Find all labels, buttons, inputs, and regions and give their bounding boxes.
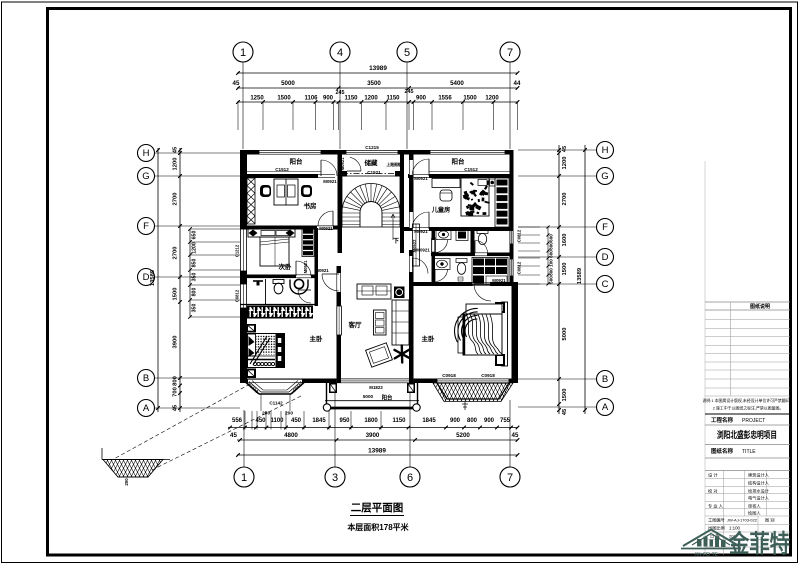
- svg-text:3900: 3900: [173, 336, 179, 349]
- svg-text:C0918: C0918: [442, 373, 456, 378]
- svg-text:5400: 5400: [450, 80, 464, 87]
- svg-text:45: 45: [173, 146, 179, 153]
- svg-text:6: 6: [407, 472, 413, 484]
- svg-text:45: 45: [512, 432, 519, 439]
- svg-text:图纸名称: 图纸名称: [711, 447, 734, 455]
- svg-text:说明:1 本图属设计版权,未经设计单位许可严禁翻印。: 说明:1 本图属设计版权,未经设计单位许可严禁翻印。: [703, 398, 794, 403]
- svg-text:C0918: C0918: [481, 373, 495, 378]
- svg-text:C1212: C1212: [235, 244, 240, 257]
- svg-text:1500: 1500: [277, 96, 291, 102]
- svg-text:C1142: C1142: [269, 401, 283, 406]
- svg-text:1250: 1250: [250, 96, 264, 102]
- svg-text:M1823: M1823: [369, 385, 383, 390]
- svg-text:900: 900: [323, 96, 334, 102]
- svg-text:阳台: 阳台: [452, 157, 466, 166]
- svg-text:D: D: [143, 272, 150, 283]
- svg-text:200: 200: [124, 478, 129, 486]
- svg-text:13589: 13589: [577, 267, 583, 284]
- svg-text:主卧: 主卧: [310, 334, 324, 343]
- svg-text:900: 900: [484, 418, 495, 424]
- svg-text:A: A: [143, 403, 150, 414]
- svg-text:1150: 1150: [392, 418, 406, 424]
- svg-text:5200: 5200: [456, 432, 470, 439]
- svg-text:44: 44: [514, 80, 521, 87]
- svg-text:绘图人: 绘图人: [748, 510, 761, 517]
- svg-text:800: 800: [549, 268, 554, 276]
- svg-text:13989: 13989: [368, 448, 386, 455]
- svg-text:C: C: [602, 279, 609, 290]
- svg-text:设 计: 设 计: [708, 472, 718, 479]
- svg-text:书房: 书房: [304, 201, 318, 210]
- svg-text:245: 245: [336, 90, 345, 96]
- svg-text:850: 850: [192, 259, 198, 268]
- svg-text:M0921: M0921: [323, 179, 337, 184]
- svg-text:650: 650: [192, 231, 198, 240]
- svg-text:结构设计人: 结构设计人: [748, 480, 770, 487]
- svg-text:600: 600: [549, 234, 554, 242]
- svg-text:H: H: [143, 148, 150, 159]
- svg-text:G: G: [142, 171, 149, 182]
- svg-text:M0921: M0921: [416, 248, 430, 253]
- svg-text:B: B: [602, 374, 608, 385]
- svg-text:45: 45: [562, 408, 568, 415]
- svg-text:C1215: C1215: [365, 145, 379, 150]
- svg-text:G: G: [601, 171, 608, 182]
- svg-text:13989: 13989: [369, 65, 387, 72]
- svg-text:阳台: 阳台: [290, 157, 304, 166]
- svg-text:1200: 1200: [485, 96, 499, 102]
- svg-text:专 业 人: 专 业 人: [708, 503, 724, 510]
- svg-text:5000: 5000: [281, 80, 295, 87]
- svg-text:电气设计人: 电气设计人: [748, 495, 770, 502]
- svg-text:C1512: C1512: [464, 167, 478, 172]
- svg-text:M0921: M0921: [303, 260, 308, 273]
- svg-text:1: 1: [240, 47, 246, 59]
- svg-text:A: A: [602, 402, 609, 413]
- svg-text:5: 5: [404, 47, 410, 59]
- svg-text:H: H: [602, 145, 609, 156]
- svg-text:3900: 3900: [366, 432, 380, 439]
- svg-text:F: F: [602, 222, 608, 233]
- svg-text:上跑阁楼: 上跑阁楼: [386, 162, 401, 167]
- svg-text:D: D: [602, 252, 609, 263]
- svg-text:本层面积178平米: 本层面积178平米: [346, 522, 409, 532]
- svg-text:图 别: 图 别: [765, 517, 775, 524]
- svg-text:556: 556: [232, 418, 243, 424]
- svg-text:2700: 2700: [562, 193, 568, 206]
- svg-text:4: 4: [337, 47, 343, 59]
- svg-text:建筑设计人: 建筑设计人: [748, 472, 770, 479]
- svg-text:1106: 1106: [304, 96, 318, 102]
- svg-text:45: 45: [233, 80, 240, 87]
- svg-text:B: B: [143, 373, 149, 384]
- svg-text:800: 800: [192, 288, 198, 297]
- svg-text:C0812: C0812: [517, 261, 522, 274]
- svg-text:M0921: M0921: [414, 229, 428, 234]
- svg-text:M0921: M0921: [315, 268, 329, 273]
- svg-text:给排水设计: 给排水设计: [748, 488, 769, 495]
- svg-text:浏阳北盛彭忠明项目: 浏阳北盛彭忠明项目: [717, 429, 777, 440]
- svg-text:C1521: C1521: [367, 170, 381, 175]
- svg-text:2700: 2700: [173, 193, 179, 206]
- svg-text:主卧: 主卧: [422, 334, 436, 343]
- svg-text:工程名称: 工程名称: [711, 416, 734, 424]
- svg-text:二层平面图: 二层平面图: [351, 502, 404, 514]
- svg-text:450: 450: [291, 418, 302, 424]
- svg-text:2700: 2700: [173, 247, 179, 260]
- svg-text:工图编号: 工图编号: [708, 517, 725, 524]
- svg-text:900: 900: [450, 418, 461, 424]
- svg-text:245: 245: [405, 89, 414, 95]
- svg-text:TITLE: TITLE: [742, 449, 756, 455]
- svg-text:1500: 1500: [562, 263, 568, 276]
- svg-text:1500: 1500: [173, 288, 179, 301]
- svg-text:800: 800: [549, 242, 554, 250]
- svg-text:下: 下: [393, 238, 399, 245]
- svg-text:800: 800: [467, 418, 478, 424]
- svg-text:950: 950: [339, 418, 350, 424]
- svg-text:7: 7: [507, 472, 513, 484]
- svg-text:M0921: M0921: [340, 157, 345, 170]
- svg-text:1556: 1556: [438, 96, 452, 102]
- svg-text:JW-AJ-1703-022: JW-AJ-1703-022: [727, 518, 758, 523]
- svg-text:儿童房: 儿童房: [431, 206, 451, 214]
- svg-text:45: 45: [230, 432, 237, 439]
- svg-text:1845: 1845: [312, 418, 326, 424]
- svg-text:3500: 3500: [367, 80, 381, 87]
- svg-text:1200: 1200: [192, 242, 198, 254]
- svg-text:C1512: C1512: [275, 167, 289, 172]
- svg-text:1200: 1200: [364, 96, 378, 102]
- svg-text:1200: 1200: [173, 158, 179, 171]
- svg-text:C0812: C0812: [517, 229, 522, 242]
- svg-text:5000: 5000: [562, 328, 568, 341]
- svg-text:M0922: M0922: [412, 239, 417, 252]
- svg-text:客厅: 客厅: [348, 320, 363, 329]
- svg-text:4800: 4800: [284, 432, 298, 439]
- svg-text:1: 1: [241, 472, 247, 484]
- svg-text:2 施工中于以图纸之标注,严禁以图量图。: 2 施工中于以图纸之标注,严禁以图量图。: [713, 406, 783, 411]
- svg-text:1500: 1500: [463, 96, 477, 102]
- svg-text:1500: 1500: [562, 389, 568, 402]
- svg-text:阳台: 阳台: [382, 394, 393, 402]
- svg-text:1845: 1845: [422, 418, 436, 424]
- svg-text:45: 45: [562, 145, 568, 152]
- svg-text:PROJECT: PROJECT: [742, 418, 765, 424]
- svg-text:13589: 13589: [150, 269, 156, 286]
- svg-text:C0812: C0812: [235, 289, 240, 302]
- svg-text:1200: 1200: [562, 157, 568, 170]
- svg-text:1800: 1800: [364, 418, 378, 424]
- svg-text:7: 7: [507, 47, 513, 59]
- svg-text:5000: 5000: [363, 394, 374, 399]
- svg-text:1:100: 1:100: [729, 526, 741, 531]
- svg-text:900: 900: [416, 96, 427, 102]
- svg-text:1100: 1100: [270, 418, 284, 424]
- svg-text:M0921: M0921: [319, 226, 333, 231]
- svg-text:1150: 1150: [344, 96, 358, 102]
- svg-text:M0921: M0921: [414, 176, 428, 181]
- svg-text:700: 700: [173, 387, 179, 397]
- svg-text:M0921: M0921: [492, 278, 506, 283]
- svg-text:1150: 1150: [386, 96, 400, 102]
- svg-text:1600: 1600: [562, 234, 568, 247]
- svg-text:350: 350: [192, 304, 198, 313]
- svg-text:100: 100: [549, 259, 554, 267]
- svg-text:3: 3: [332, 472, 338, 484]
- svg-text:800: 800: [173, 376, 179, 386]
- svg-text:F: F: [143, 221, 149, 232]
- svg-text:次卧: 次卧: [279, 262, 293, 271]
- svg-text:755: 755: [500, 418, 511, 424]
- svg-text:审核人: 审核人: [748, 503, 761, 510]
- svg-text:金菲特: 金菲特: [728, 529, 790, 558]
- svg-text:350: 350: [192, 273, 198, 282]
- svg-text:储藏: 储藏: [364, 158, 379, 167]
- svg-text:校 对: 校 对: [708, 488, 718, 495]
- svg-text:JIN FEI TE: JIN FEI TE: [694, 552, 719, 558]
- svg-text:45: 45: [173, 404, 179, 411]
- svg-text:图纸说明: 图纸说明: [750, 303, 770, 310]
